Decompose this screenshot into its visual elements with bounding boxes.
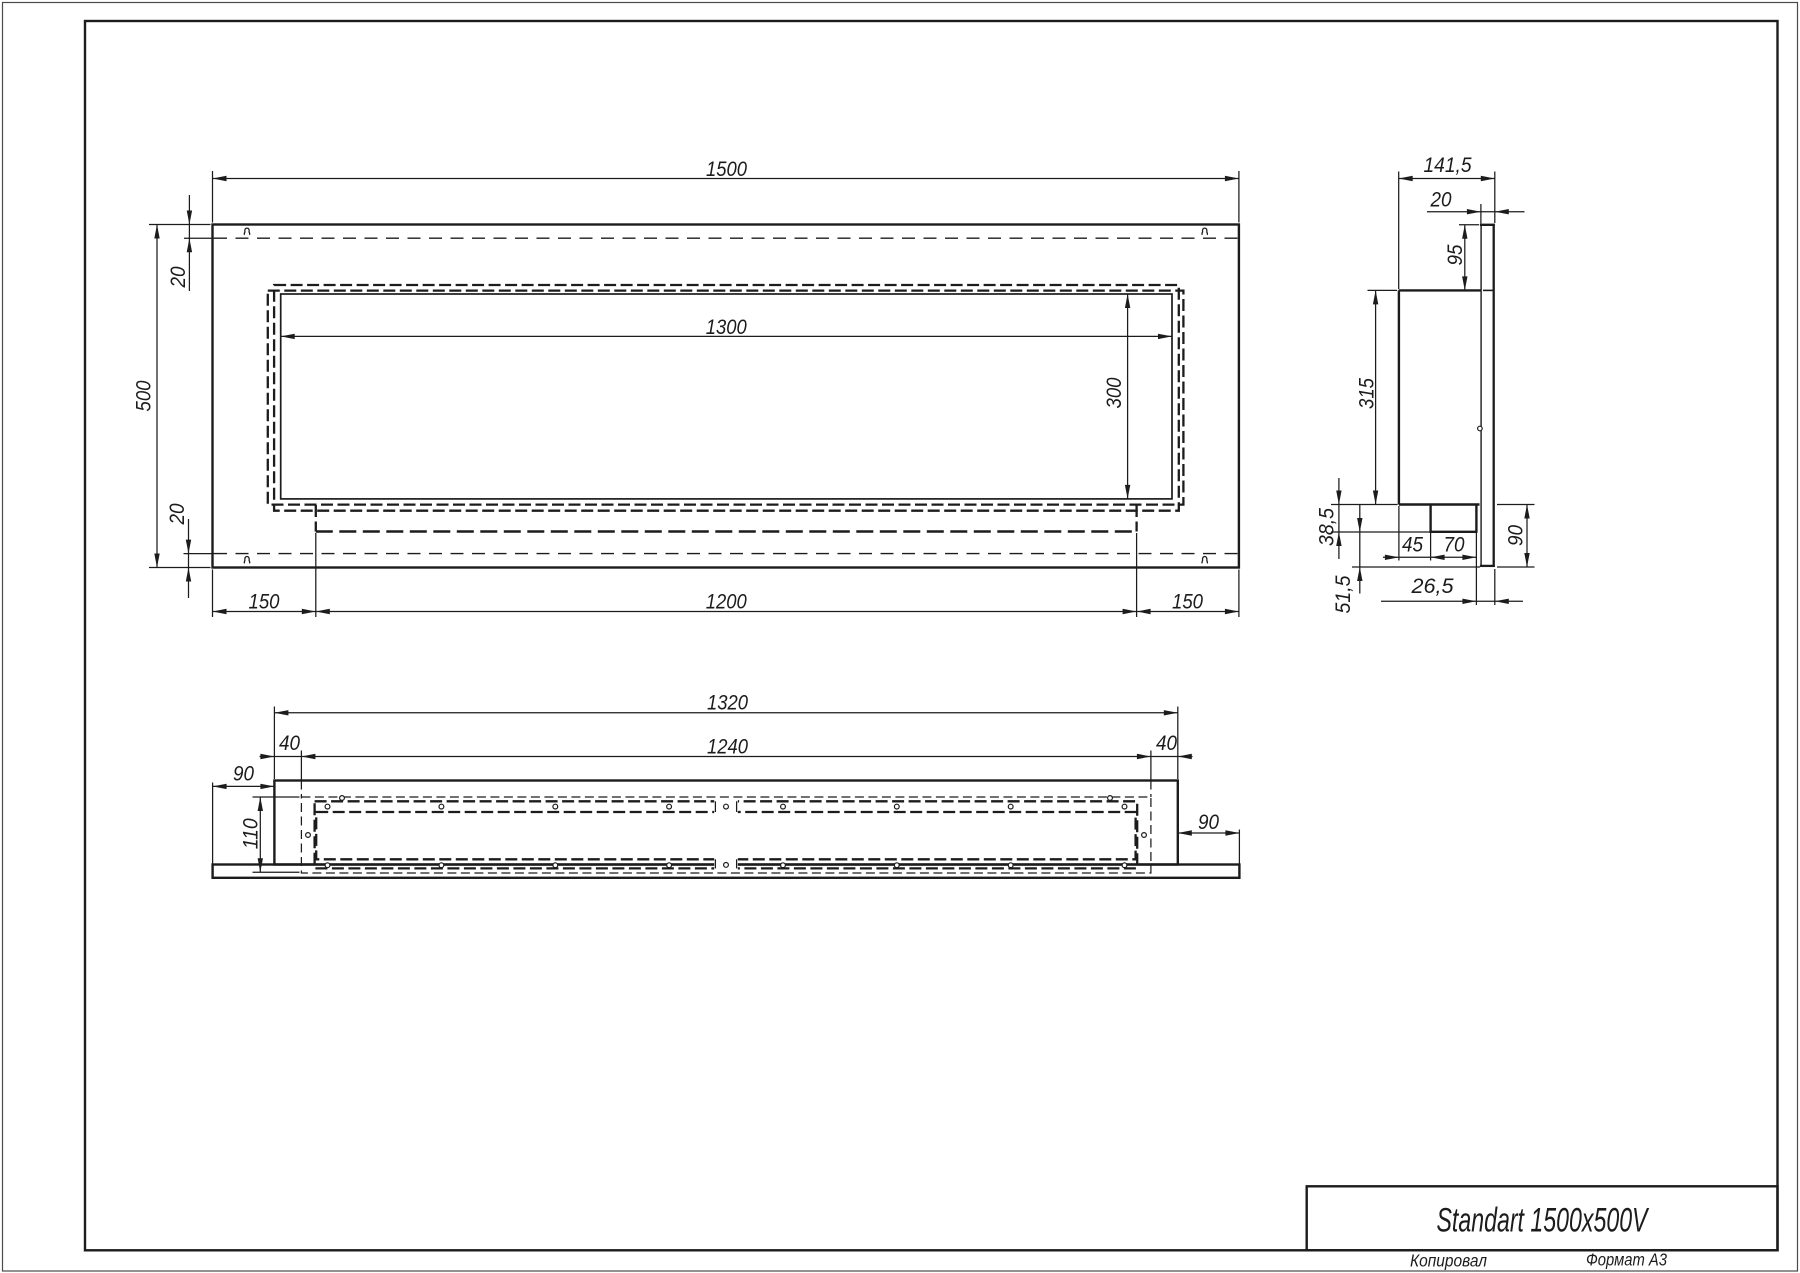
svg-text:20: 20: [166, 503, 189, 525]
svg-text:Формат А3: Формат А3: [1586, 1250, 1667, 1270]
svg-text:90: 90: [233, 763, 254, 786]
svg-text:150: 150: [1172, 591, 1203, 614]
svg-text:40: 40: [1156, 732, 1177, 755]
svg-text:Standart 1500x500V: Standart 1500x500V: [1437, 1202, 1650, 1240]
svg-text:20: 20: [167, 266, 190, 288]
svg-text:1500: 1500: [706, 158, 747, 181]
svg-text:1300: 1300: [706, 316, 747, 339]
svg-text:95: 95: [1444, 244, 1467, 265]
svg-text:20: 20: [1430, 189, 1452, 212]
svg-text:90: 90: [1198, 811, 1219, 834]
svg-text:Копировал: Копировал: [1410, 1250, 1487, 1270]
svg-text:90: 90: [1505, 525, 1528, 546]
svg-text:315: 315: [1356, 378, 1379, 409]
svg-text:150: 150: [249, 591, 280, 614]
svg-text:40: 40: [279, 732, 300, 755]
svg-text:1240: 1240: [707, 736, 748, 759]
svg-text:45: 45: [1402, 534, 1423, 557]
svg-text:70: 70: [1444, 534, 1465, 557]
svg-text:110: 110: [240, 818, 263, 849]
svg-text:38,5: 38,5: [1316, 508, 1339, 546]
svg-text:26,5: 26,5: [1410, 575, 1453, 598]
svg-text:1200: 1200: [706, 591, 747, 614]
svg-text:500: 500: [133, 380, 156, 411]
svg-text:51,5: 51,5: [1332, 575, 1355, 613]
svg-text:300: 300: [1103, 377, 1126, 408]
svg-text:1320: 1320: [707, 692, 748, 715]
svg-text:141,5: 141,5: [1424, 154, 1472, 177]
